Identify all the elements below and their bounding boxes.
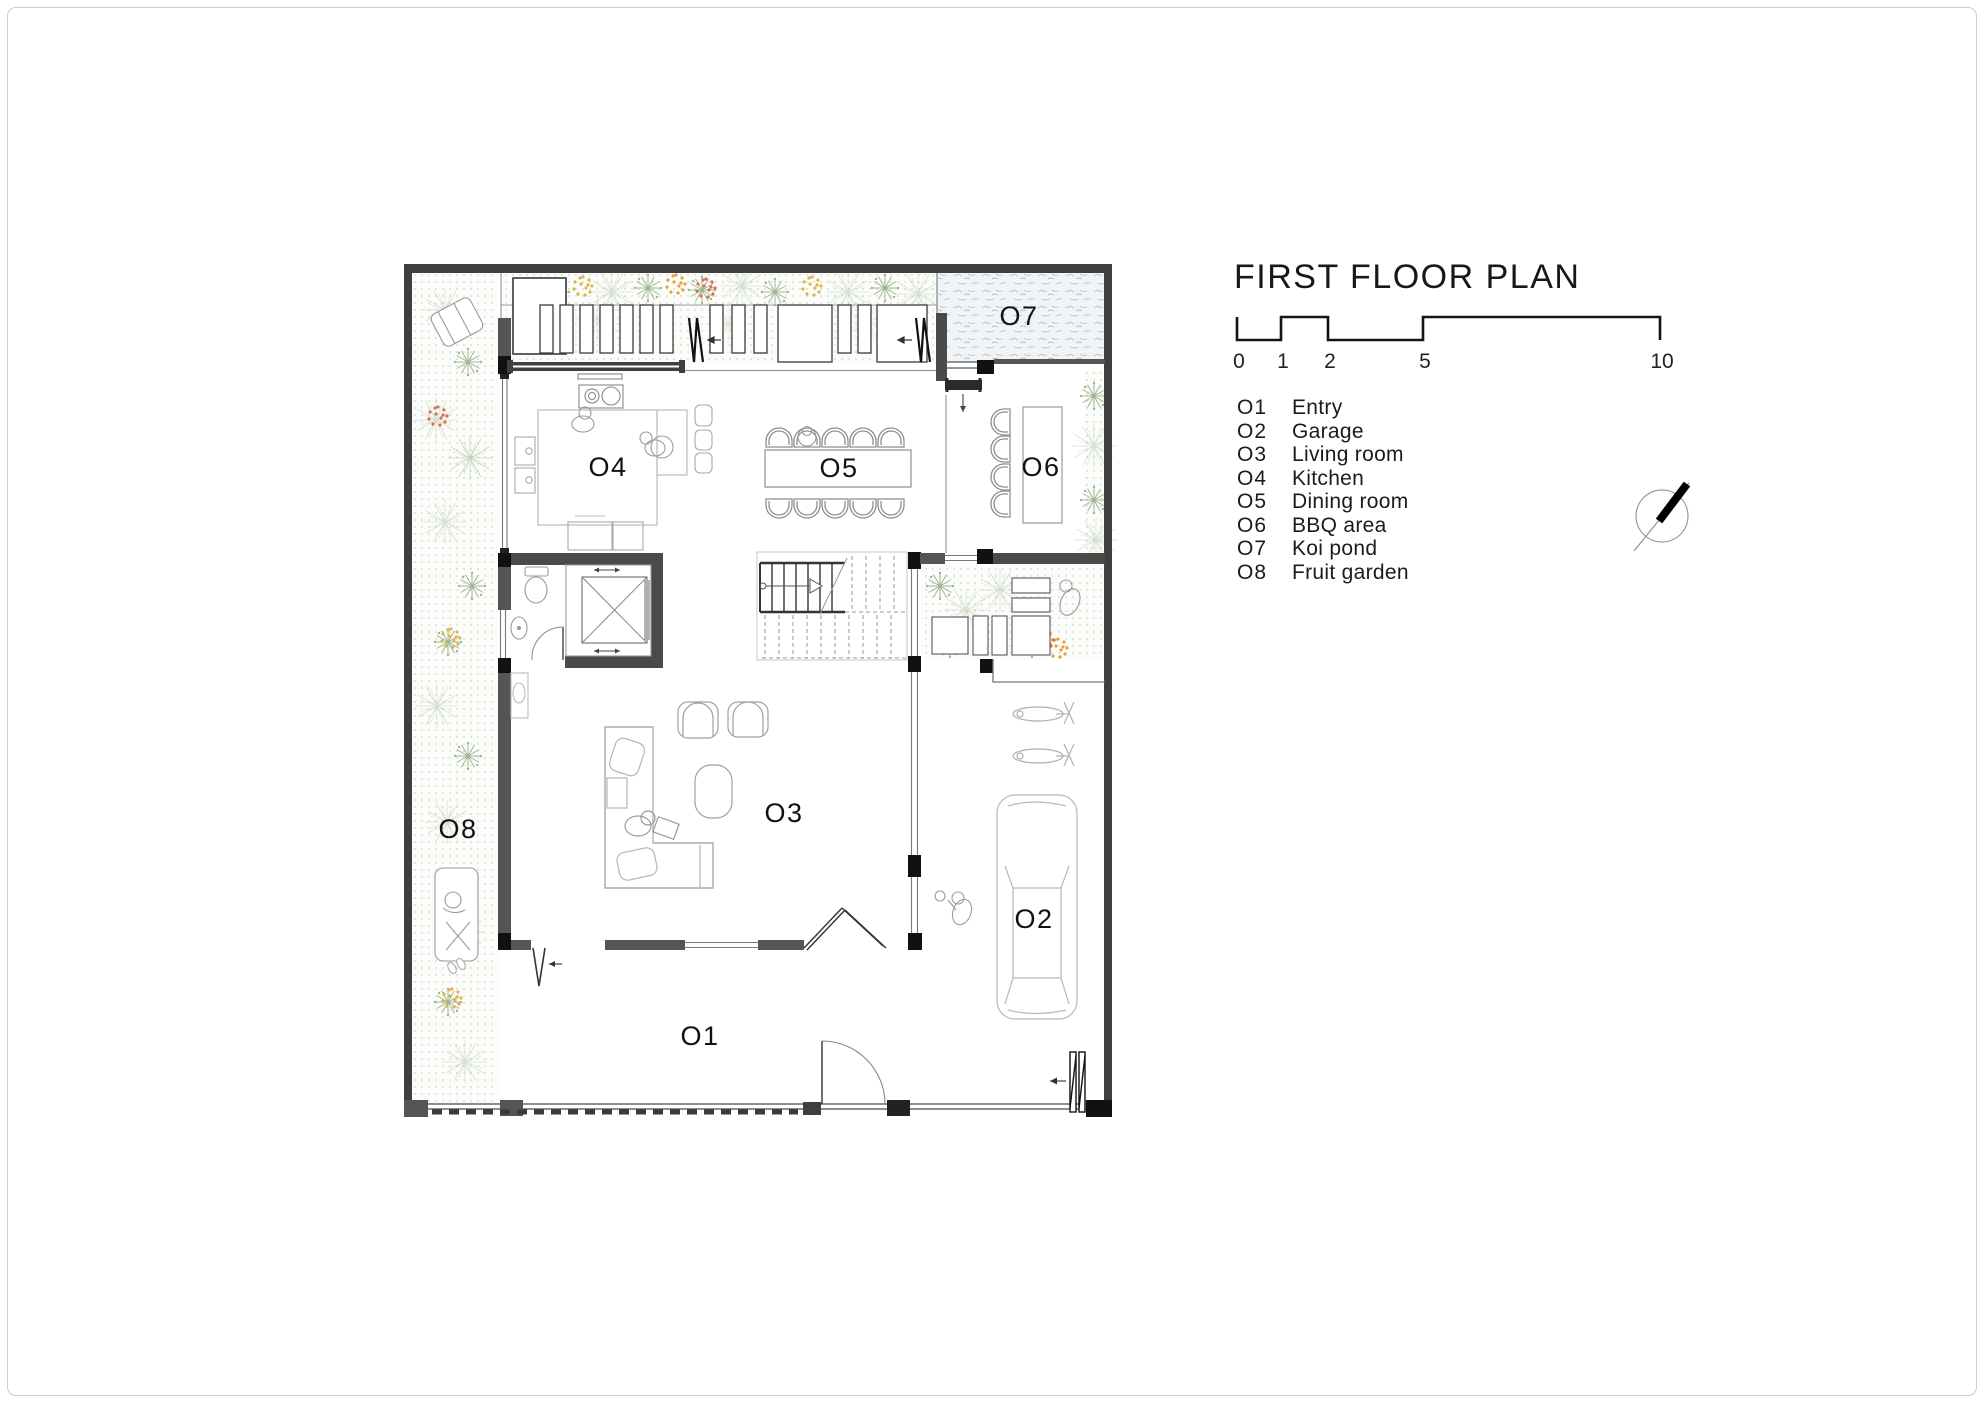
- legend-code: O3: [1237, 443, 1292, 467]
- legend-item-living-room: O3 Living room: [1237, 443, 1409, 467]
- legend-code: O5: [1237, 490, 1292, 514]
- scale-tick: 10: [1650, 350, 1673, 374]
- room-label-bbq-area: O6: [1021, 452, 1060, 482]
- legend-label: Dining room: [1292, 490, 1409, 514]
- person-with-pet: [935, 891, 975, 927]
- room-label-koi-pond: O7: [999, 301, 1038, 331]
- scale-tick: 0: [1233, 350, 1245, 374]
- room-label-fruit-garden: O8: [438, 814, 477, 844]
- armchair: [728, 702, 768, 737]
- legend-code: O1: [1237, 396, 1292, 420]
- room-labels: O1 O2 O3 O4 O5 O6 O7 O8: [438, 301, 1060, 1051]
- lounge-chair: [435, 868, 478, 961]
- motorbike: [1013, 702, 1074, 724]
- legend-code: O8: [1237, 561, 1292, 585]
- legend-label: BBQ area: [1292, 514, 1387, 538]
- legend-label: Kitchen: [1292, 467, 1364, 491]
- legend-code: O6: [1237, 514, 1292, 538]
- legend-code: O4: [1237, 467, 1292, 491]
- legend-item-entry: O1 Entry: [1237, 396, 1409, 420]
- armchair: [678, 702, 718, 738]
- legend-item-garage: O2 Garage: [1237, 420, 1409, 444]
- scale-bar: [1235, 313, 1665, 343]
- legend-label: Entry: [1292, 396, 1343, 420]
- room-label-kitchen: O4: [588, 452, 627, 482]
- legend-item-kitchen: O4 Kitchen: [1237, 467, 1409, 491]
- legend-item-dining-room: O5 Dining room: [1237, 490, 1409, 514]
- legend-label: Fruit garden: [1292, 561, 1409, 585]
- toilet-room-fixtures: [511, 567, 548, 718]
- legend: O1 Entry O2 Garage O3 Living room O4 Kit…: [1237, 396, 1409, 584]
- legend-item-koi-pond: O7 Koi pond: [1237, 537, 1409, 561]
- room-label-entry: O1: [680, 1021, 719, 1051]
- legend-label: Garage: [1292, 420, 1364, 444]
- fruit-garden-strip: [412, 273, 498, 1104]
- motorbike: [1013, 744, 1074, 766]
- room-label-garage: O2: [1014, 904, 1053, 934]
- legend-item-fruit-garden: O8 Fruit garden: [1237, 561, 1409, 585]
- elevator: [566, 565, 651, 656]
- scale-tick: 2: [1324, 350, 1336, 374]
- room-label-living-room: O3: [764, 798, 803, 828]
- bbq-furniture: [945, 378, 1062, 523]
- stairs: [757, 552, 907, 660]
- coffee-table: [695, 765, 732, 818]
- legend-label: Koi pond: [1292, 537, 1377, 561]
- scale-tick: 5: [1419, 350, 1431, 374]
- legend-code: O7: [1237, 537, 1292, 561]
- legend-code: O2: [1237, 420, 1292, 444]
- room-label-dining-room: O5: [819, 453, 858, 483]
- page-title: FIRST FLOOR PLAN: [1234, 258, 1580, 297]
- north-arrow-icon: [1634, 483, 1689, 551]
- scale-tick: 1: [1277, 350, 1289, 374]
- legend-item-bbq-area: O6 BBQ area: [1237, 514, 1409, 538]
- floor-plan-drawing: O1 O2 O3 O4 O5 O6 O7 O8: [0, 0, 1984, 1403]
- legend-label: Living room: [1292, 443, 1404, 467]
- living-room-furniture: [605, 702, 768, 888]
